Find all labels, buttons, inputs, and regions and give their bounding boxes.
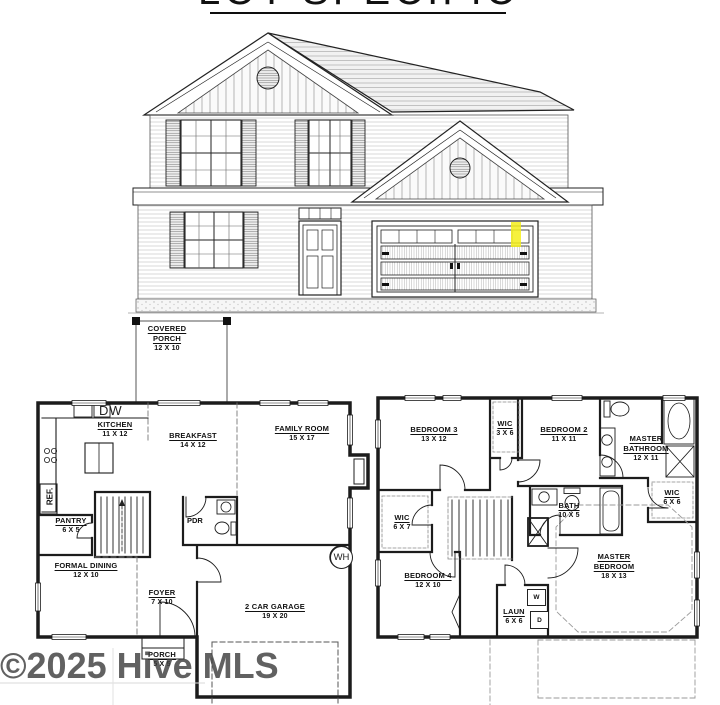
- powder-room-label: PDR: [187, 516, 203, 525]
- laundry-label: LAUN 6 X 6: [496, 607, 532, 626]
- master-bedroom-label: MASTER BEDROOM 18 X 13: [588, 552, 640, 581]
- dryer-box: D: [530, 611, 549, 629]
- shutter: [170, 212, 184, 268]
- gable-vent-left: [257, 67, 279, 89]
- floor-plan-sheet: LOT SPECIFIC COVERED PORCH 12 X 10 DW RE…: [0, 0, 720, 705]
- formal-dining-label: FORMAL DINING 12 X 10: [46, 561, 126, 580]
- refrigerator-label: REF.: [46, 480, 55, 514]
- dishwasher-label: DW: [99, 403, 123, 418]
- gable-vent-right: [450, 158, 470, 178]
- family-room-label: FAMILY ROOM 15 X 17: [258, 424, 346, 443]
- front-elevation-drawing: [128, 33, 604, 313]
- title-underline: [210, 12, 506, 14]
- wic-master-label: WIC 6 X 6: [653, 488, 691, 507]
- shutter: [244, 212, 258, 268]
- foyer-label: FOYER 7 X 10: [138, 588, 186, 607]
- front-door: [299, 221, 341, 295]
- wic-hall-label: WIC 3 X 6: [489, 419, 521, 438]
- bedroom2-label: BEDROOM 2 11 X 11: [533, 425, 595, 444]
- washer-box: W: [527, 589, 546, 606]
- wic-left-label: WIC 6 X 7: [384, 513, 420, 532]
- bath-label: BATH 10 X 5: [548, 501, 590, 520]
- breakfast-label: BREAKFAST 14 X 12: [157, 431, 229, 450]
- mls-watermark: ©2025 Hive MLS: [0, 645, 279, 687]
- yellow-highlight-mark: [511, 222, 521, 247]
- shutter: [295, 120, 308, 186]
- bedroom4-label: BEDROOM 4 12 X 10: [396, 571, 460, 590]
- roof-below-outline: [490, 640, 695, 705]
- kitchen-label: KITCHEN 11 X 12: [86, 420, 144, 439]
- shutter: [242, 120, 256, 186]
- pantry-label: PANTRY 6 X 5: [46, 516, 96, 535]
- water-heater-label: WH: [330, 546, 353, 569]
- shutter: [166, 120, 180, 186]
- garage-label: 2 CAR GARAGE 19 X 20: [222, 602, 328, 621]
- master-bathroom-label: MASTER BATHROOM 12 X 11: [620, 434, 672, 463]
- shutter: [352, 120, 365, 186]
- drawing-linework: [0, 0, 720, 705]
- covered-porch-label: COVERED PORCH 12 X 10: [138, 324, 196, 353]
- bedroom3-label: BEDROOM 3 13 X 12: [403, 425, 465, 444]
